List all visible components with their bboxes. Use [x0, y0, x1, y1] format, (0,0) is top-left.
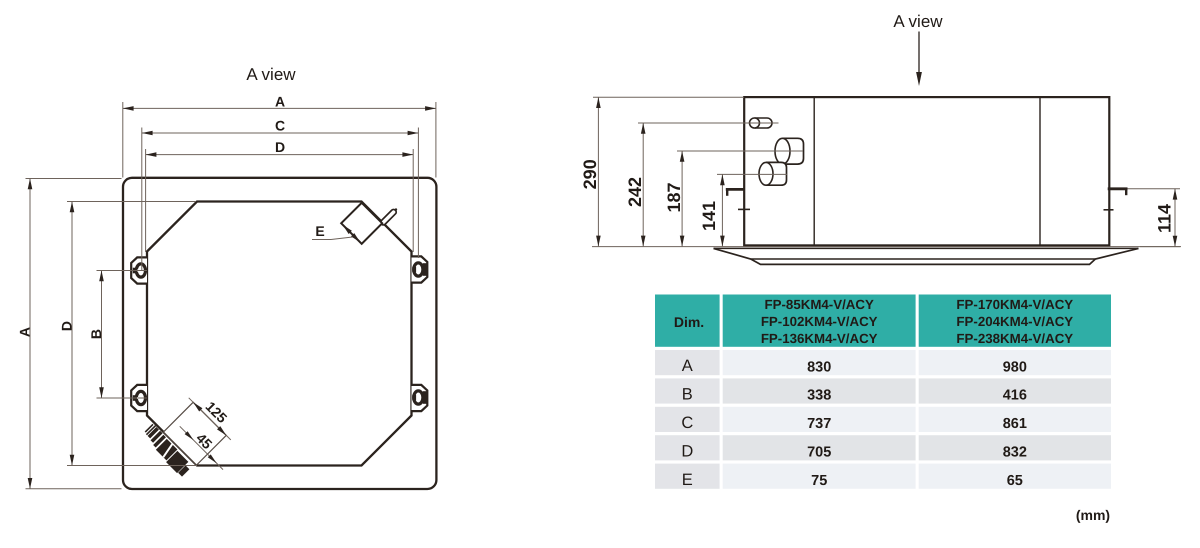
svg-text:830: 830	[807, 359, 831, 375]
svg-text:A: A	[275, 94, 285, 110]
svg-text:FP-238KM4-V/ACY: FP-238KM4-V/ACY	[956, 331, 1073, 346]
svg-text:242: 242	[625, 177, 645, 207]
svg-text:65: 65	[1007, 473, 1023, 489]
svg-text:A: A	[682, 357, 693, 375]
svg-text:FP-170KM4-V/ACY: FP-170KM4-V/ACY	[956, 297, 1073, 312]
svg-text:FP-136KM4-V/ACY: FP-136KM4-V/ACY	[761, 331, 878, 346]
svg-text:416: 416	[1003, 388, 1027, 404]
svg-text:338: 338	[807, 388, 831, 404]
svg-text:705: 705	[807, 445, 831, 461]
svg-text:C: C	[681, 414, 693, 432]
svg-text:861: 861	[1003, 416, 1027, 432]
svg-text:B: B	[682, 386, 693, 404]
svg-text:(mm): (mm)	[1076, 507, 1110, 523]
svg-text:Dim.: Dim.	[674, 314, 704, 330]
svg-text:D: D	[275, 139, 285, 155]
svg-text:187: 187	[664, 182, 684, 212]
svg-text:A view: A view	[246, 65, 296, 84]
svg-text:D: D	[59, 321, 75, 331]
svg-text:E: E	[682, 471, 693, 489]
svg-text:A view: A view	[893, 12, 943, 31]
svg-text:75: 75	[811, 473, 827, 489]
svg-text:114: 114	[1155, 204, 1175, 233]
svg-text:B: B	[88, 329, 104, 339]
svg-text:FP-102KM4-V/ACY: FP-102KM4-V/ACY	[761, 314, 878, 329]
svg-text:D: D	[681, 442, 693, 460]
svg-text:A: A	[17, 327, 33, 337]
svg-text:980: 980	[1003, 359, 1027, 375]
svg-text:141: 141	[699, 201, 719, 231]
svg-text:FP-204KM4-V/ACY: FP-204KM4-V/ACY	[956, 314, 1073, 329]
svg-text:832: 832	[1003, 445, 1027, 461]
svg-text:E: E	[315, 223, 324, 239]
svg-text:FP-85KM4-V/ACY: FP-85KM4-V/ACY	[765, 297, 874, 312]
svg-text:737: 737	[807, 416, 831, 432]
svg-text:C: C	[275, 118, 285, 134]
svg-text:290: 290	[580, 159, 600, 189]
